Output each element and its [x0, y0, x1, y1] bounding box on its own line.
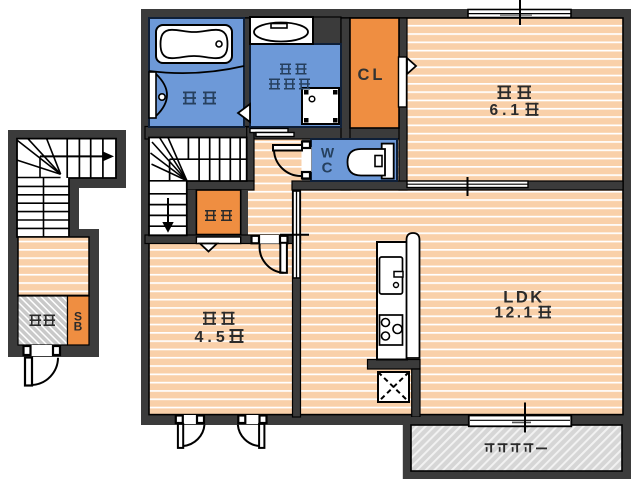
svg-text:C: C [322, 160, 333, 177]
svg-text:B: B [74, 320, 83, 334]
svg-text:CL: CL [358, 66, 386, 84]
svg-text:12.1: 12.1 [495, 304, 535, 321]
svg-text:6.1: 6.1 [490, 102, 524, 119]
svg-text:4.5: 4.5 [195, 329, 229, 346]
svg-text:W: W [321, 145, 335, 161]
